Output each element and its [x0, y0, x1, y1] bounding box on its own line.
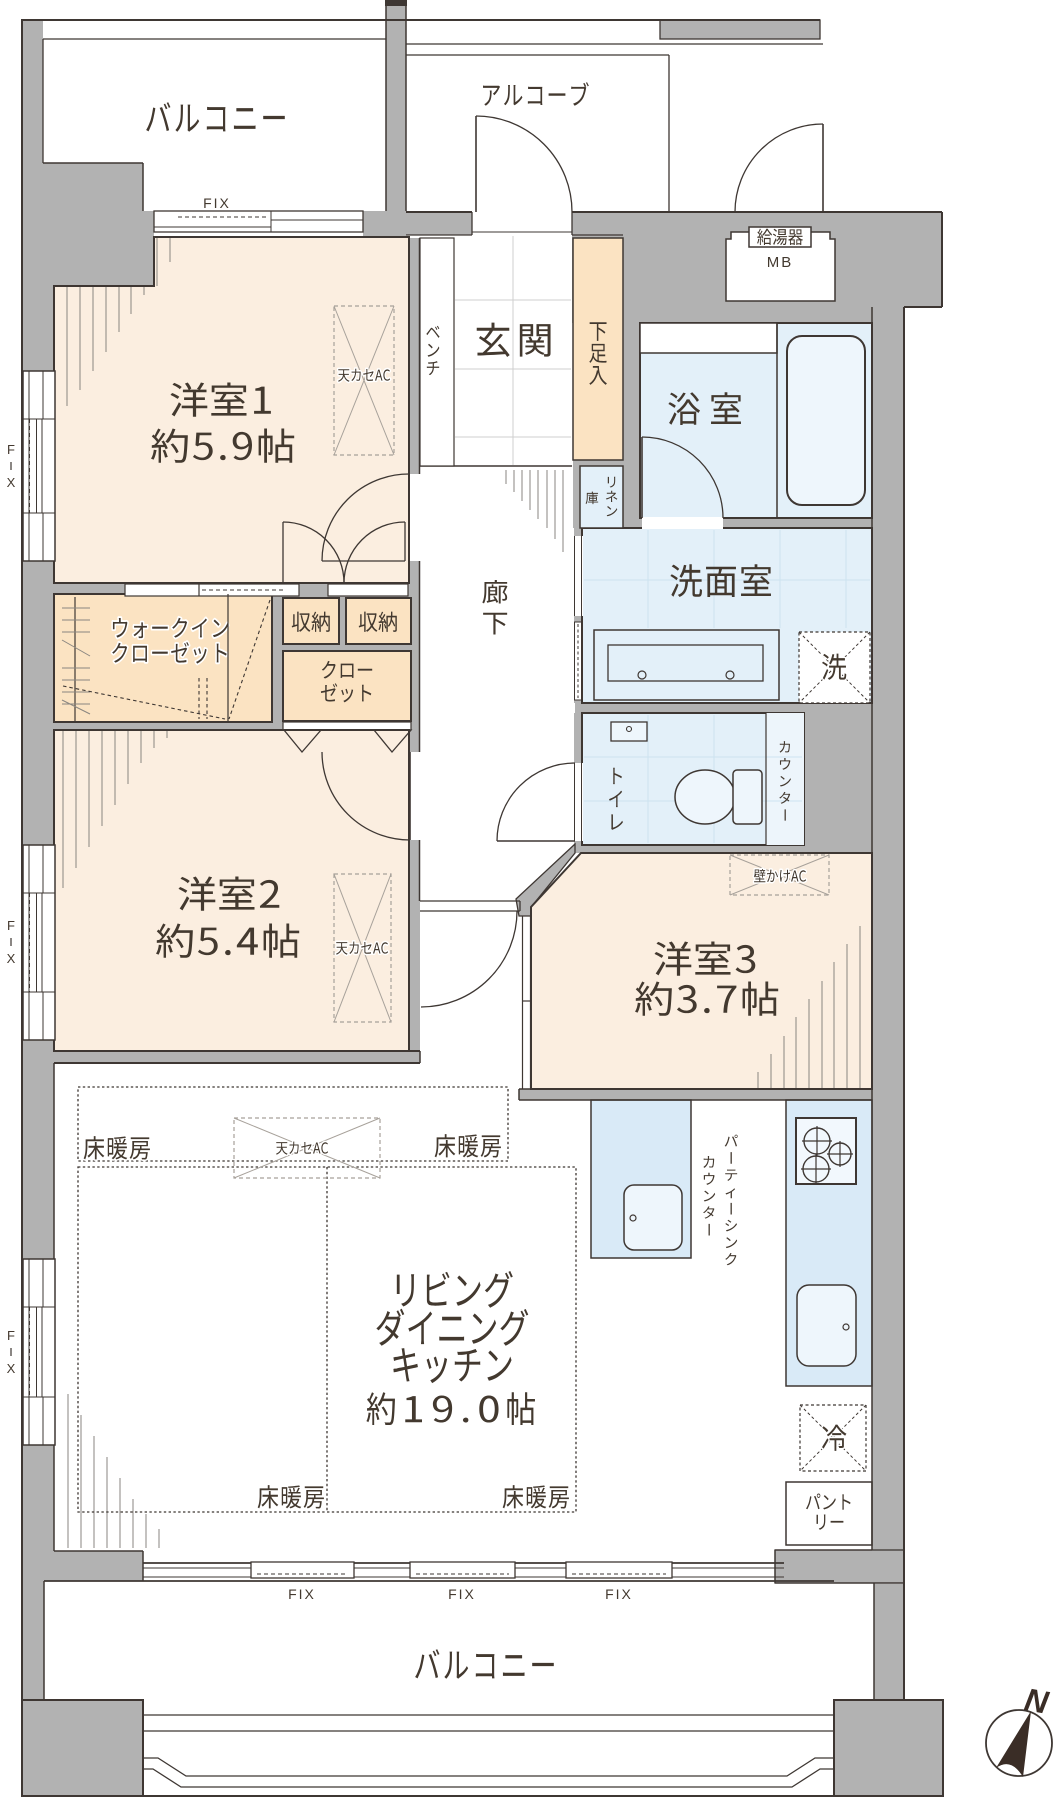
- svg-text:FIX: FIX: [203, 195, 231, 211]
- svg-text:FIX: FIX: [605, 1586, 633, 1602]
- svg-text:X: X: [7, 475, 16, 490]
- svg-text:F: F: [7, 442, 15, 457]
- svg-text:X: X: [7, 951, 16, 966]
- svg-text:FIX: FIX: [288, 1586, 316, 1602]
- svg-text:F: F: [7, 918, 15, 933]
- svg-text:X: X: [7, 1361, 16, 1376]
- svg-text:F: F: [7, 1328, 15, 1343]
- svg-text:MB: MB: [767, 254, 794, 271]
- svg-text:FIX: FIX: [448, 1586, 476, 1602]
